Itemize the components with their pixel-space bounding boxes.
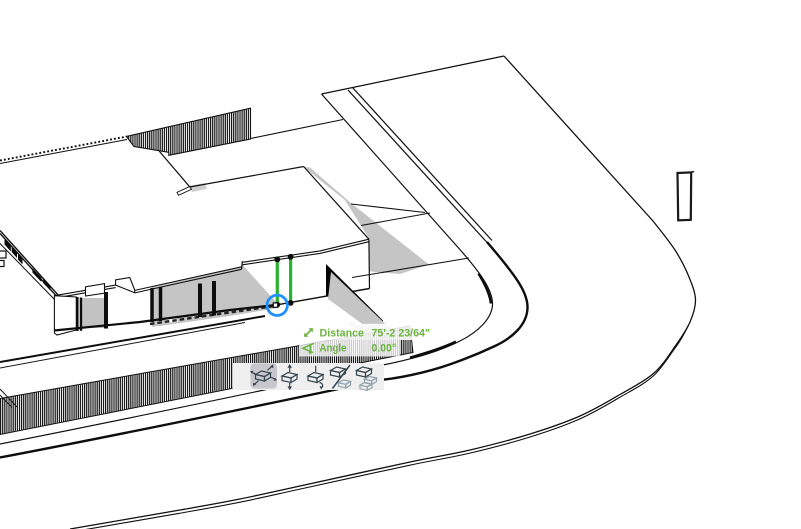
svg-text:75'-2 23/64": 75'-2 23/64" [372, 328, 431, 340]
svg-text:0.00°: 0.00° [372, 343, 397, 355]
svg-text:Angle: Angle [320, 343, 347, 355]
svg-text:Distance: Distance [320, 327, 365, 339]
